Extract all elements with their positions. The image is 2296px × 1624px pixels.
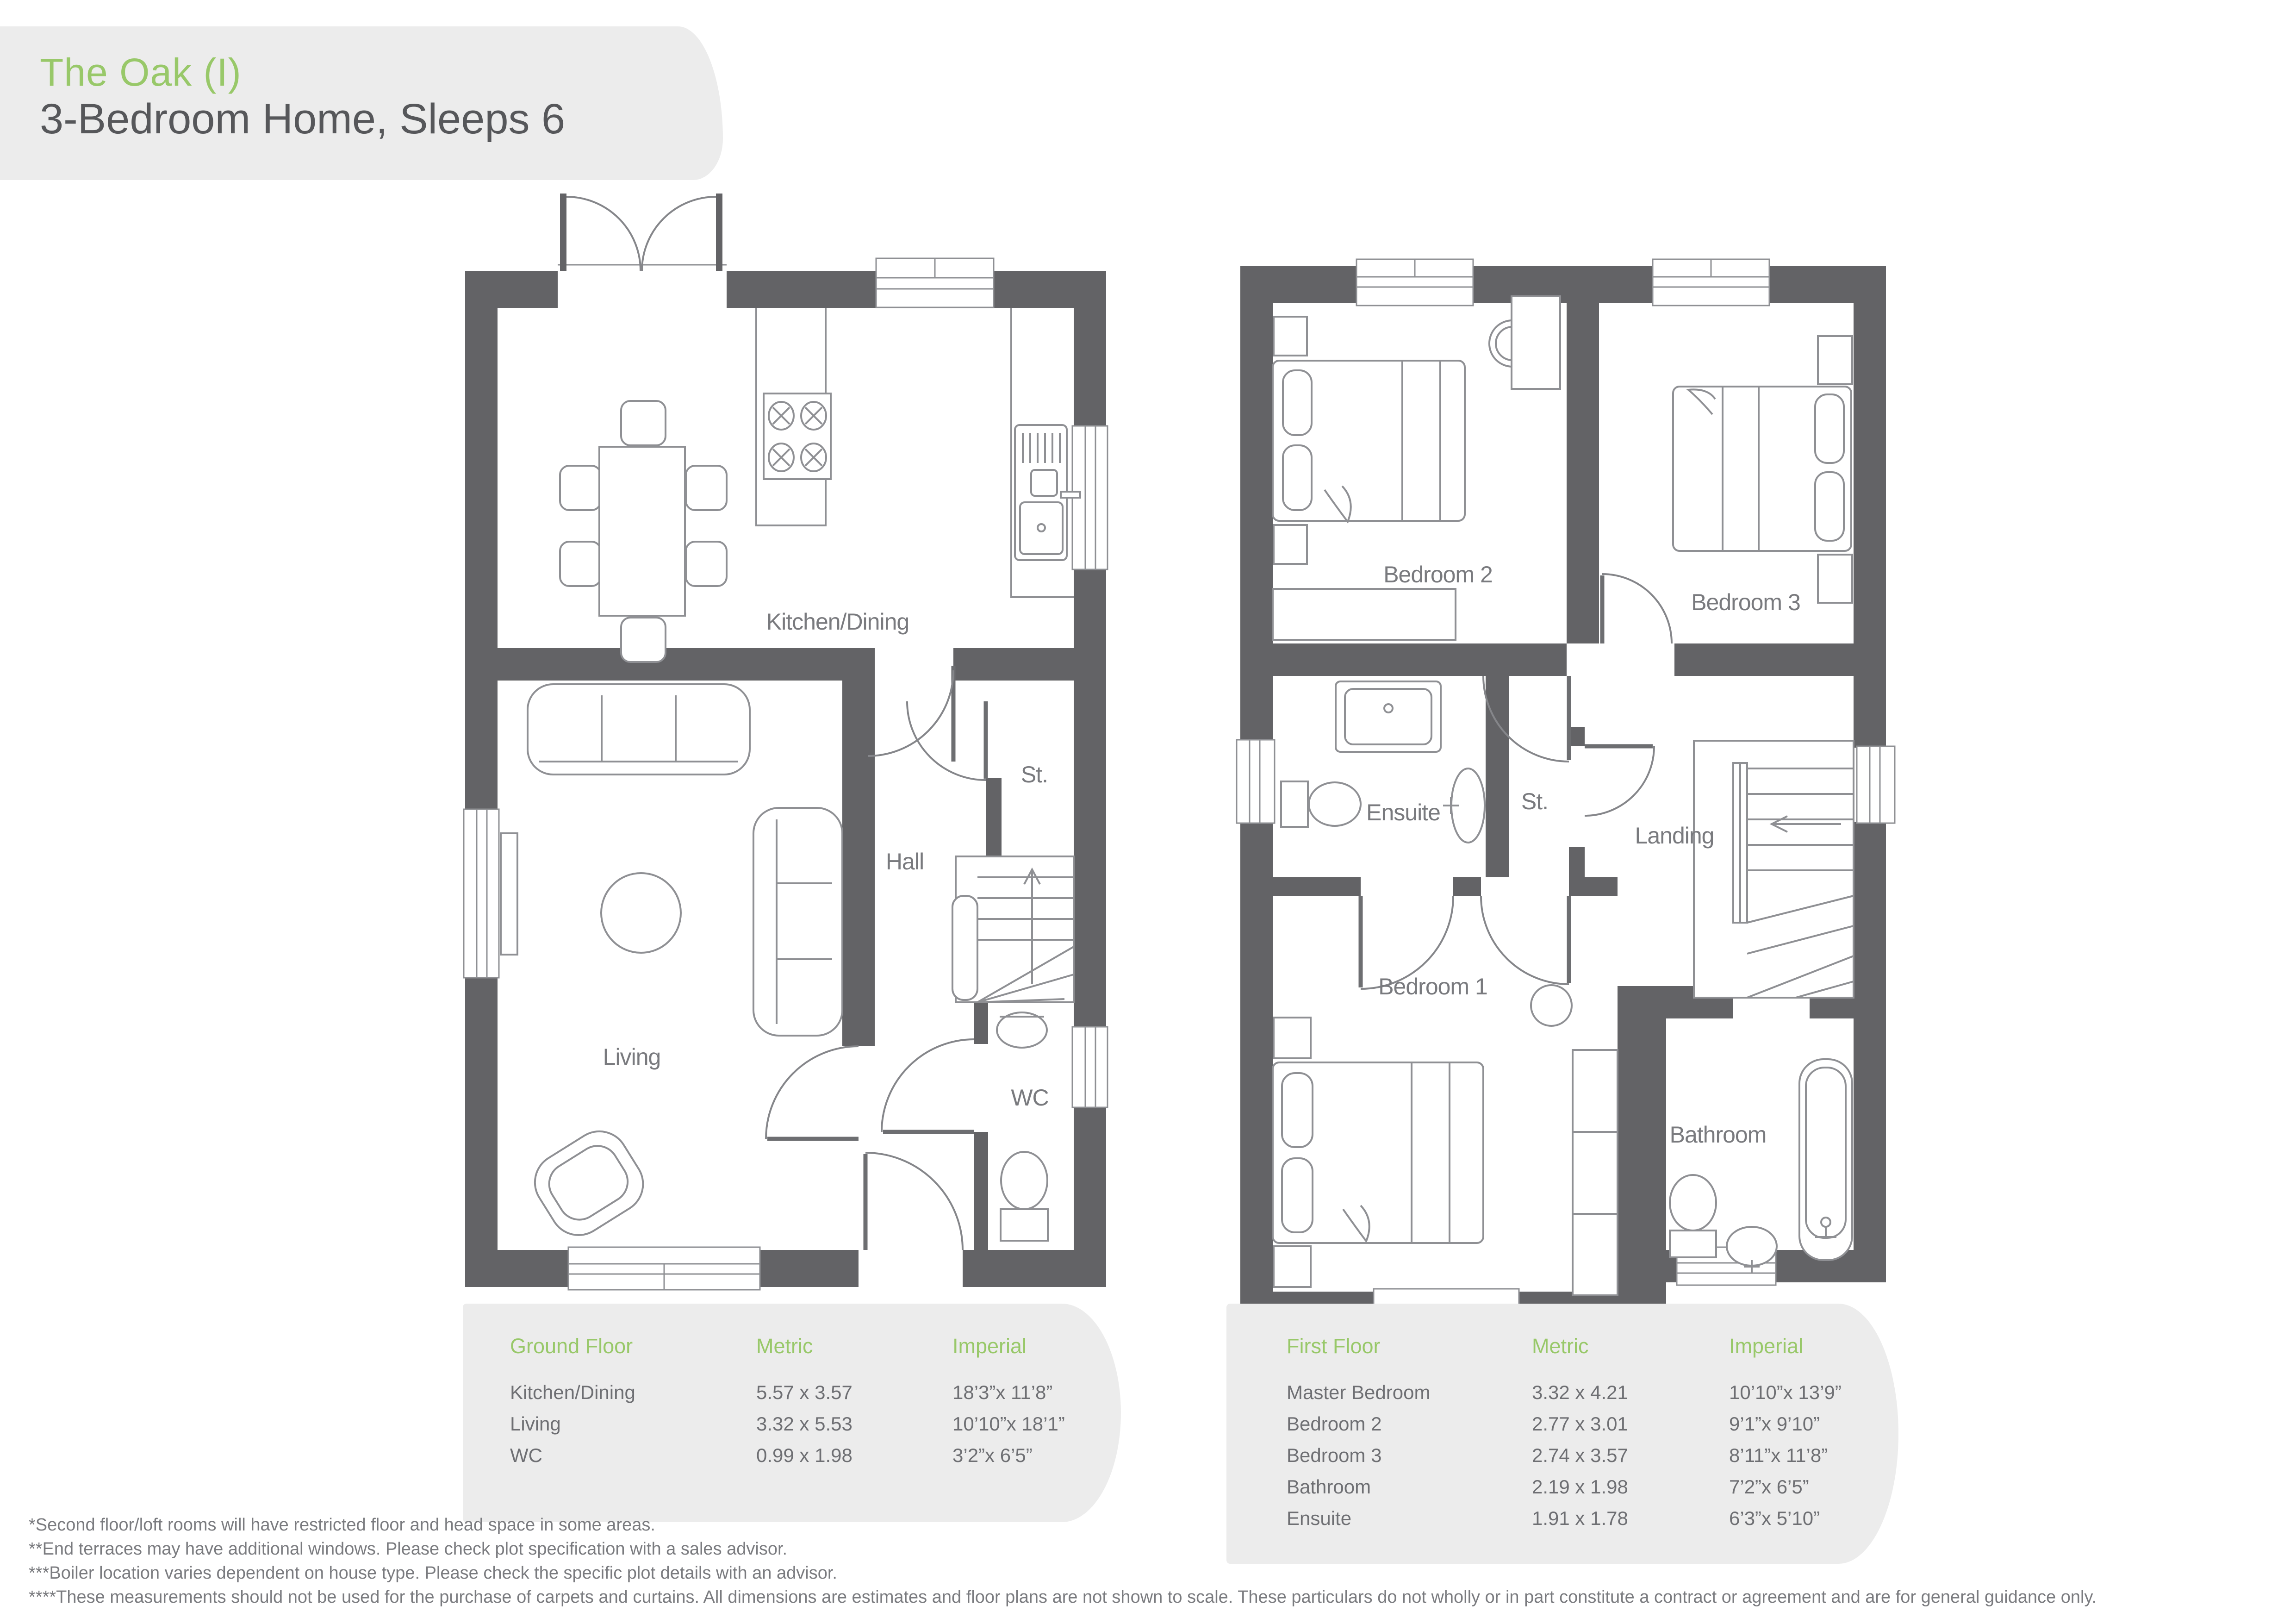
chair-icon: [1531, 985, 1572, 1026]
room-name: WC: [510, 1444, 756, 1476]
room-label-landing: Landing: [1635, 823, 1714, 849]
room-name: Bedroom 3: [1287, 1444, 1532, 1476]
room-name: Master Bedroom: [1287, 1381, 1532, 1413]
imperial-value: 10’10”x 13’9”: [1729, 1381, 1898, 1413]
room-label-hall: Hall: [886, 849, 924, 874]
footnote-line: **End terraces may have additional windo…: [29, 1537, 2097, 1561]
basin-icon: [1443, 768, 1485, 843]
table-title: First Floor: [1287, 1334, 1532, 1358]
room-label-bedroom2: Bedroom 2: [1383, 562, 1493, 587]
room-label-bedroom3: Bedroom 3: [1691, 589, 1800, 615]
dining-table-icon: [560, 401, 727, 662]
footnotes: *Second floor/loft rooms will have restr…: [29, 1513, 2097, 1609]
room-name: Kitchen/Dining: [510, 1381, 756, 1413]
column-imperial: Imperial: [952, 1334, 1121, 1358]
imperial-value: 9’1”x 9’10”: [1729, 1413, 1898, 1444]
desk-icon: [1512, 296, 1560, 389]
table-title: Ground Floor: [510, 1334, 756, 1358]
toilet-icon: [1670, 1175, 1716, 1257]
metric-value: 2.74 x 3.57: [1532, 1444, 1729, 1476]
room-name: Bedroom 2: [1287, 1413, 1532, 1444]
wardrobe-icon: [1818, 336, 1852, 384]
sofa2-icon: [753, 808, 842, 1036]
metric-value: 3.32 x 5.53: [756, 1413, 952, 1444]
room-name: Living: [510, 1413, 756, 1444]
bed2-icon: [1273, 361, 1465, 522]
room-label-storage-ff: St.: [1521, 788, 1548, 814]
metric-value: 2.77 x 3.01: [1532, 1413, 1729, 1444]
column-metric: Metric: [756, 1334, 952, 1358]
toilet-icon: [1001, 1152, 1047, 1209]
first-floor-stairs: [1694, 741, 1854, 998]
room-label-bathroom: Bathroom: [1670, 1122, 1767, 1148]
metric-value: 3.32 x 4.21: [1532, 1381, 1729, 1413]
room-label-living: Living: [603, 1044, 661, 1070]
table-row: Bedroom 3 2.74 x 3.57 8’11”x 11’8”: [1287, 1444, 1898, 1476]
bedside-table-icon: [1274, 525, 1307, 564]
bed3-icon: [1673, 387, 1851, 551]
desk-chair-icon: [1489, 320, 1512, 367]
hob-icon: [764, 394, 831, 479]
room-label-kitchen-dining: Kitchen/Dining: [766, 609, 909, 635]
bedside-table-icon: [1274, 1246, 1311, 1287]
imperial-value: 10’10”x 18’1”: [952, 1413, 1121, 1444]
metric-value: 5.57 x 3.57: [756, 1381, 952, 1413]
ground-floor-plan: Kitchen/Dining Hall St. Living WC: [464, 194, 1108, 1290]
bathroom-fittings: [1670, 1059, 1852, 1273]
metric-value: 2.19 x 1.98: [1532, 1476, 1729, 1507]
table-header: First Floor Metric Imperial: [1287, 1334, 1898, 1358]
bed1-icon: [1273, 1062, 1483, 1243]
armchair-icon: [524, 1120, 653, 1246]
table-row: Kitchen/Dining 5.57 x 3.57 18’3”x 11’8”: [510, 1381, 1121, 1413]
bedroom2-furniture: [1273, 296, 1560, 640]
bedside-table-icon: [1274, 1018, 1311, 1058]
room-name: Bathroom: [1287, 1476, 1532, 1507]
room-label-ensuite: Ensuite: [1366, 800, 1440, 825]
table-row: Bedroom 2 2.77 x 3.01 9’1”x 9’10”: [1287, 1413, 1898, 1444]
imperial-value: 7’2”x 6’5”: [1729, 1476, 1898, 1507]
french-doors: [558, 194, 727, 271]
basin-icon: [997, 1012, 1047, 1048]
footnote-line: ***Boiler location varies dependent on h…: [29, 1561, 2097, 1585]
room-label-wc: WC: [1011, 1085, 1048, 1111]
first-floor-plan: Bedroom 2 Bedroom 3 Ensuite St. Landing …: [1237, 259, 1895, 1327]
bedroom1-furniture: [1273, 985, 1618, 1295]
round-table-icon: [601, 873, 681, 953]
column-metric: Metric: [1532, 1334, 1729, 1358]
table-row: Living 3.32 x 5.53 10’10”x 18’1”: [510, 1413, 1121, 1444]
metric-value: 0.99 x 1.98: [756, 1444, 952, 1476]
footnote-line: ****These measurements should not be use…: [29, 1585, 2097, 1609]
wc-fittings: [997, 1012, 1048, 1241]
kitchen-sink-icon: [1015, 425, 1080, 560]
imperial-value: 3’2”x 6’5”: [952, 1444, 1121, 1476]
wardrobe-icon: [1818, 555, 1852, 603]
wardrobe-icon: [1273, 589, 1456, 640]
ground-floor-stairs: [952, 856, 1074, 1002]
shower-icon: [1336, 681, 1441, 752]
imperial-value: 8’11”x 11’8”: [1729, 1444, 1898, 1476]
table-row: WC 0.99 x 1.98 3’2”x 6’5”: [510, 1444, 1121, 1476]
column-imperial: Imperial: [1729, 1334, 1898, 1358]
room-label-storage-gf: St.: [1021, 762, 1048, 787]
living-furniture: [501, 684, 842, 1246]
toilet-icon: [1281, 781, 1361, 827]
footnote-line: *Second floor/loft rooms will have restr…: [29, 1513, 2097, 1537]
kitchen-fittings: [756, 308, 1080, 597]
table-header: Ground Floor Metric Imperial: [510, 1334, 1121, 1358]
bedroom3-furniture: [1673, 336, 1852, 603]
wardrobe-icon: [1573, 1050, 1618, 1295]
table-row: Bathroom 2.19 x 1.98 7’2”x 6’5”: [1287, 1476, 1898, 1507]
room-label-bedroom1: Bedroom 1: [1378, 974, 1487, 999]
bathtub-icon: [1799, 1059, 1852, 1260]
bedside-table-icon: [1274, 317, 1307, 356]
sofa-icon: [528, 684, 750, 775]
floor-plan-drawings: Kitchen/Dining Hall St. Living WC: [0, 0, 2296, 1624]
radiator-icon: [501, 833, 517, 955]
imperial-value: 18’3”x 11’8”: [952, 1381, 1121, 1413]
table-row: Master Bedroom 3.32 x 4.21 10’10”x 13’9”: [1287, 1381, 1898, 1413]
floorplan-sheet: The Oak (I) 3-Bedroom Home, Sleeps 6: [0, 0, 2296, 1624]
ground-floor-dimensions-table: Ground Floor Metric Imperial Kitchen/Din…: [463, 1304, 1121, 1522]
